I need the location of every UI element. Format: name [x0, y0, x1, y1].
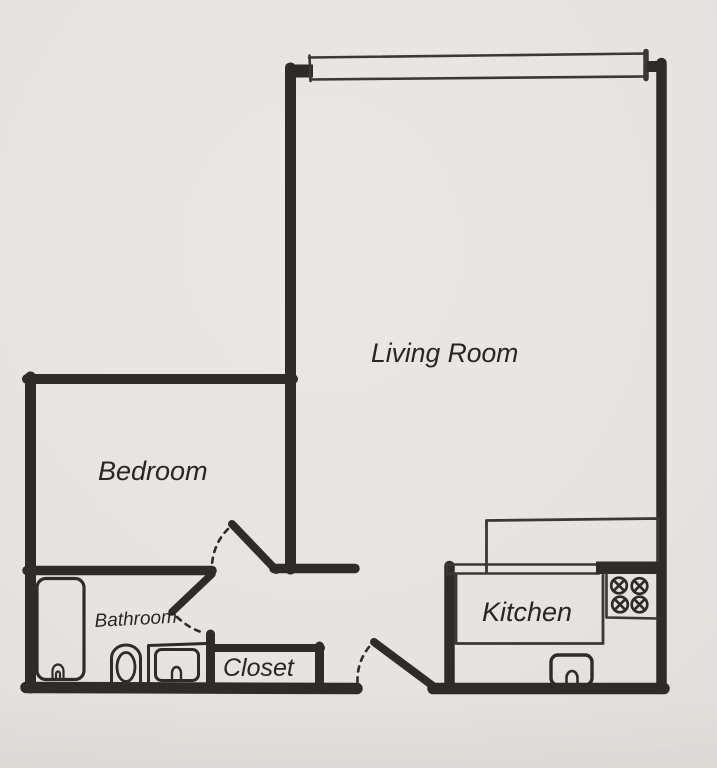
svg-text:Kitchen: Kitchen — [482, 597, 572, 627]
svg-text:Bedroom: Bedroom — [98, 456, 208, 486]
svg-text:Bathroom: Bathroom — [94, 607, 177, 632]
svg-text:Living Room: Living Room — [371, 338, 518, 368]
svg-text:Closet: Closet — [223, 654, 295, 682]
